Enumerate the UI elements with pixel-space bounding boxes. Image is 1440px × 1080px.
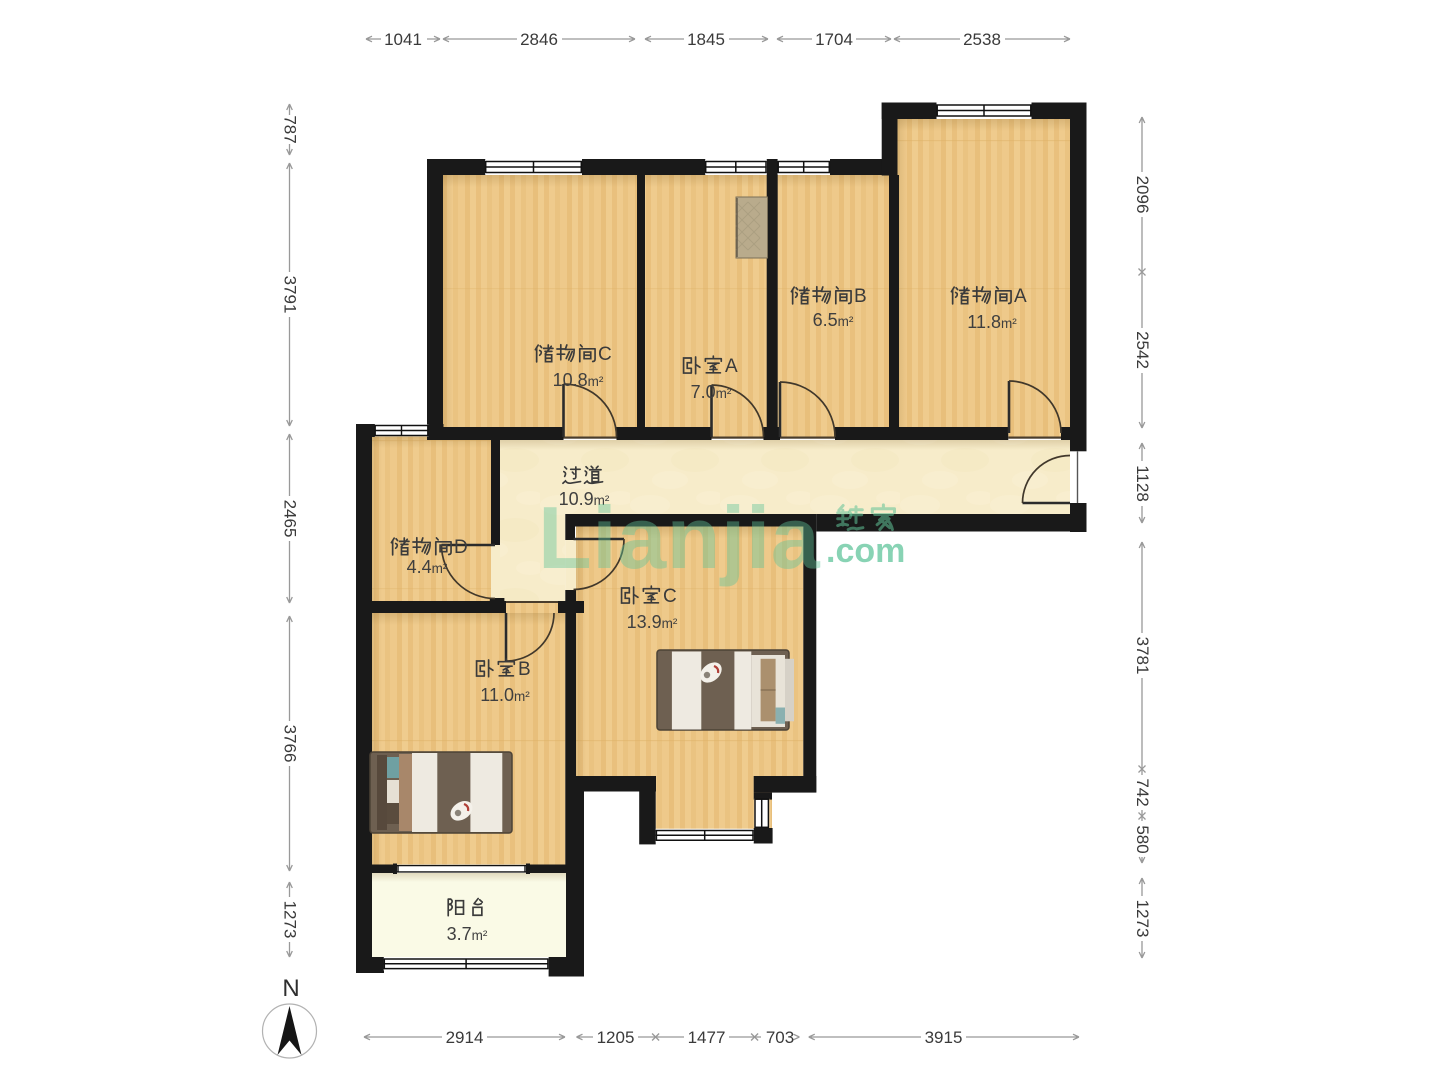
svg-text:2538: 2538	[963, 30, 1001, 49]
svg-text:C: C	[598, 344, 612, 365]
svg-text:C: C	[663, 586, 677, 607]
svg-text:1128: 1128	[1133, 465, 1152, 502]
svg-text:2846: 2846	[520, 30, 558, 49]
svg-text:1273: 1273	[1133, 900, 1152, 938]
svg-text:2096: 2096	[1133, 176, 1152, 214]
svg-text:1041: 1041	[384, 30, 422, 49]
svg-text:1704: 1704	[815, 30, 853, 49]
svg-text:3781: 3781	[1133, 637, 1152, 675]
svg-text:B: B	[854, 286, 867, 307]
svg-text:787: 787	[281, 115, 300, 143]
svg-text:Lianjia: Lianjia	[538, 488, 821, 587]
svg-text:1477: 1477	[688, 1028, 726, 1047]
svg-text:2542: 2542	[1133, 331, 1152, 369]
svg-text:1205: 1205	[597, 1028, 635, 1047]
svg-text:B: B	[518, 659, 531, 680]
svg-text:3766: 3766	[281, 725, 300, 763]
svg-text:742: 742	[1133, 778, 1152, 806]
svg-text:2465: 2465	[281, 500, 300, 538]
svg-text:.com: .com	[826, 532, 905, 570]
svg-text:1845: 1845	[687, 30, 725, 49]
svg-text:3791: 3791	[281, 276, 300, 314]
svg-text:D: D	[454, 537, 468, 558]
svg-text:N: N	[282, 975, 299, 1002]
svg-text:1273: 1273	[281, 901, 300, 939]
svg-text:A: A	[725, 356, 738, 377]
svg-text:580: 580	[1133, 825, 1152, 853]
svg-text:703: 703	[766, 1028, 794, 1047]
svg-text:A: A	[1014, 286, 1027, 307]
svg-text:2914: 2914	[446, 1028, 484, 1047]
svg-text:3915: 3915	[925, 1028, 963, 1047]
